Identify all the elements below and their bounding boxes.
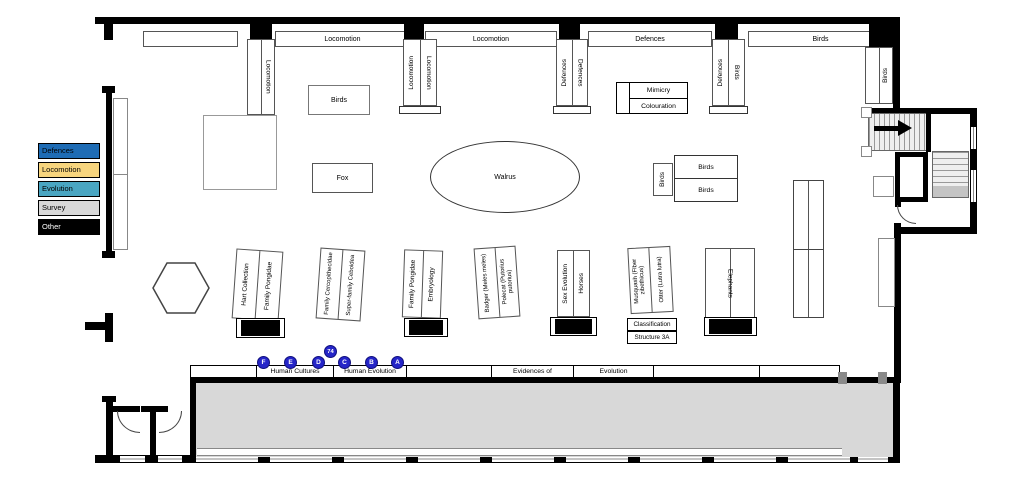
case-column: Locomotion <box>404 40 420 105</box>
case-label: Locomotion <box>408 56 415 90</box>
case-colouration: Colouration <box>630 99 687 113</box>
stair-landing <box>933 186 968 197</box>
stair-newel <box>861 107 872 118</box>
structure-box: Structure 3A <box>627 331 677 344</box>
marker-74: 74 <box>324 345 337 358</box>
stair-newel <box>861 146 872 157</box>
window-sill-band <box>197 448 842 456</box>
window <box>158 456 182 462</box>
case-column: Birds <box>879 48 893 103</box>
case-label: Embryology <box>428 267 436 302</box>
case-label: Polecat (Putorius putorius) <box>498 247 516 317</box>
wall-case-unlabeled <box>143 31 238 47</box>
pillar-case-defences-birds: Defences Birds <box>712 39 745 106</box>
case-hart-pongidae: Hart Collection Family Pongidae <box>232 248 284 321</box>
case-column <box>866 48 879 103</box>
case-label: Defences <box>576 59 583 86</box>
case-birds-side: Birds <box>653 163 673 196</box>
door-swing-arc <box>117 411 140 433</box>
pillar-block <box>250 24 272 39</box>
window <box>971 127 976 149</box>
case-column: Polecat (Putorius putorius) <box>494 247 519 317</box>
case-column: Family Pongidae <box>403 250 423 317</box>
bar-segment-evolution: Evolution <box>573 366 653 377</box>
door-swing-arc <box>897 205 916 224</box>
left-wall-case-upper <box>113 98 128 175</box>
marker-b: B <box>365 356 378 369</box>
bar-segment <box>406 366 491 377</box>
case-label: Super-family Ceboidea <box>346 255 357 316</box>
case-label: Birds <box>659 172 666 187</box>
case-label: Badger (Meles meles) <box>481 254 492 313</box>
case-cell <box>617 83 630 113</box>
case-column: Defences <box>572 40 588 105</box>
wall-hall-right <box>894 223 901 383</box>
wall-left-cap-lower <box>102 251 115 258</box>
case-birds-nw: Birds <box>308 85 370 115</box>
case-column <box>248 40 261 114</box>
case-column: Super-family Ceboidea <box>338 250 365 320</box>
legend-item-other: Other <box>38 219 100 235</box>
case-mimicry: Mimicry <box>630 83 687 99</box>
case-big-unlabeled <box>203 115 277 190</box>
wall-case-defences: Defences <box>588 31 712 47</box>
marker-a: A <box>391 356 404 369</box>
case-divider <box>794 249 823 250</box>
case-tall-empty <box>793 180 824 318</box>
pillar-block <box>715 24 738 39</box>
pillar-case-locomotion-pair: Locomotion Locomotion <box>403 39 437 106</box>
window <box>971 170 976 202</box>
marker-c: C <box>338 356 351 369</box>
case-column: Embryology <box>421 251 442 318</box>
wall-left-main <box>106 88 112 258</box>
case-fox: Fox <box>312 163 373 193</box>
right-wall-case-empty <box>878 238 895 307</box>
case-column: Horses <box>573 251 589 316</box>
window <box>120 456 145 462</box>
pillar-case-locomotion: Locomotion <box>247 39 275 115</box>
classification-box: Classification <box>627 318 677 331</box>
pillar-block <box>404 24 424 39</box>
case-elephants: Elephants <box>705 248 755 318</box>
pillar-case-defences-pair: Defences Defences <box>556 39 588 106</box>
case-birds-stack: Birds Birds <box>674 155 738 202</box>
case-platform <box>550 317 597 336</box>
wall-top-right-corner <box>893 24 900 114</box>
case-column: Birds <box>728 40 744 105</box>
pillar-case-base <box>399 106 441 114</box>
staircase-lower <box>932 151 969 198</box>
case-label: Horses <box>578 273 585 294</box>
legend-item-locomotion: Locomotion <box>38 162 100 178</box>
case-label: Family Cercopithecidae <box>324 252 335 315</box>
case-label: Defences <box>561 59 568 86</box>
wall-left-cap-upper <box>102 86 115 93</box>
bar-segment <box>759 366 841 377</box>
pillar-case-base <box>553 106 591 114</box>
museum-floor-plan: Defences Locomotion Evolution Survey Oth… <box>0 0 1024 488</box>
wall-left-post-bottom-cap <box>102 396 116 402</box>
case-mimicry-group: Mimicry Colouration <box>616 82 688 114</box>
pillar-block <box>559 24 580 39</box>
bar-segment <box>653 366 759 377</box>
wall-post <box>878 372 887 384</box>
case-column: Otter (Lutra lutra) <box>648 247 672 312</box>
bar-segment <box>191 366 256 377</box>
marker-e: E <box>284 356 297 369</box>
case-hexagon <box>152 262 210 314</box>
closed-area <box>190 377 900 457</box>
stair-side-box <box>873 176 894 197</box>
case-pongidae-embryology: Family Pongidae Embryology <box>402 249 443 318</box>
pillar-block <box>869 24 893 47</box>
elevator <box>895 152 928 202</box>
right-wall-case-birds: Birds <box>865 47 893 104</box>
door-center-post <box>150 412 156 456</box>
wall-right-outer <box>970 114 977 234</box>
wall-left-post-top <box>104 24 113 40</box>
stairs-direction-arrow-icon <box>874 120 914 137</box>
left-wall-case-lower <box>113 174 128 250</box>
wall-top <box>95 17 900 24</box>
wall-left-tstub-h <box>85 322 112 330</box>
pillar-case-base <box>709 106 748 114</box>
case-cercopithecidae-ceboidea: Family Cercopithecidae Super-family Cebo… <box>316 248 366 322</box>
marker-d: D <box>312 356 325 369</box>
case-column: Sex Evolution <box>558 251 573 316</box>
case-label: Family Pongidae <box>409 259 418 308</box>
case-label: Elephants <box>706 249 754 317</box>
stair-divider-wall <box>926 112 931 152</box>
wall-case-locomotion-1: Locomotion <box>275 31 410 47</box>
case-birds-bottom: Birds <box>675 180 737 201</box>
case-platform <box>236 318 285 338</box>
case-musquash-otter: Musquash (Fiber zibethicus) Otter (Lutra… <box>627 246 673 314</box>
case-badger-polecat: Badger (Meles meles) Polecat (Putorius p… <box>474 246 521 320</box>
case-walrus: Walrus <box>430 141 580 213</box>
case-label: Family Pongidae <box>264 261 275 310</box>
case-column: Defences <box>557 40 572 105</box>
legend-item-defences: Defences <box>38 143 100 159</box>
case-column: Locomotion <box>420 40 437 105</box>
case-label: Locomotion <box>264 60 271 94</box>
case-label: Locomotion <box>425 56 432 90</box>
legend-item-evolution: Evolution <box>38 181 100 197</box>
wall-case-locomotion-2: Locomotion <box>425 31 557 47</box>
case-label: Hart Collection <box>241 263 251 306</box>
case-platform <box>404 318 448 337</box>
case-column: Locomotion <box>261 40 275 114</box>
case-label: Otter (Lutra lutra) <box>656 256 665 302</box>
case-label: Birds <box>882 68 889 83</box>
marker-f: F <box>257 356 270 369</box>
door-swing-arc <box>159 411 182 433</box>
case-label: Sex Evolution <box>562 264 569 304</box>
case-birds-top: Birds <box>675 156 737 179</box>
wall-post <box>838 372 847 384</box>
wall-stairs-bottom <box>895 227 977 234</box>
case-column: Family Pongidae <box>255 251 283 320</box>
legend-item-survey: Survey <box>38 200 100 216</box>
bar-segment-evidences-of: Evidences of <box>491 366 573 377</box>
case-label: Musquash (Fiber zibethicus) <box>632 248 649 313</box>
case-label: Defences <box>717 59 724 86</box>
case-platform <box>704 317 757 336</box>
case-column: Defences <box>713 40 728 105</box>
case-sexevolution-horses: Sex Evolution Horses <box>557 250 590 317</box>
case-label: Birds <box>733 65 740 80</box>
